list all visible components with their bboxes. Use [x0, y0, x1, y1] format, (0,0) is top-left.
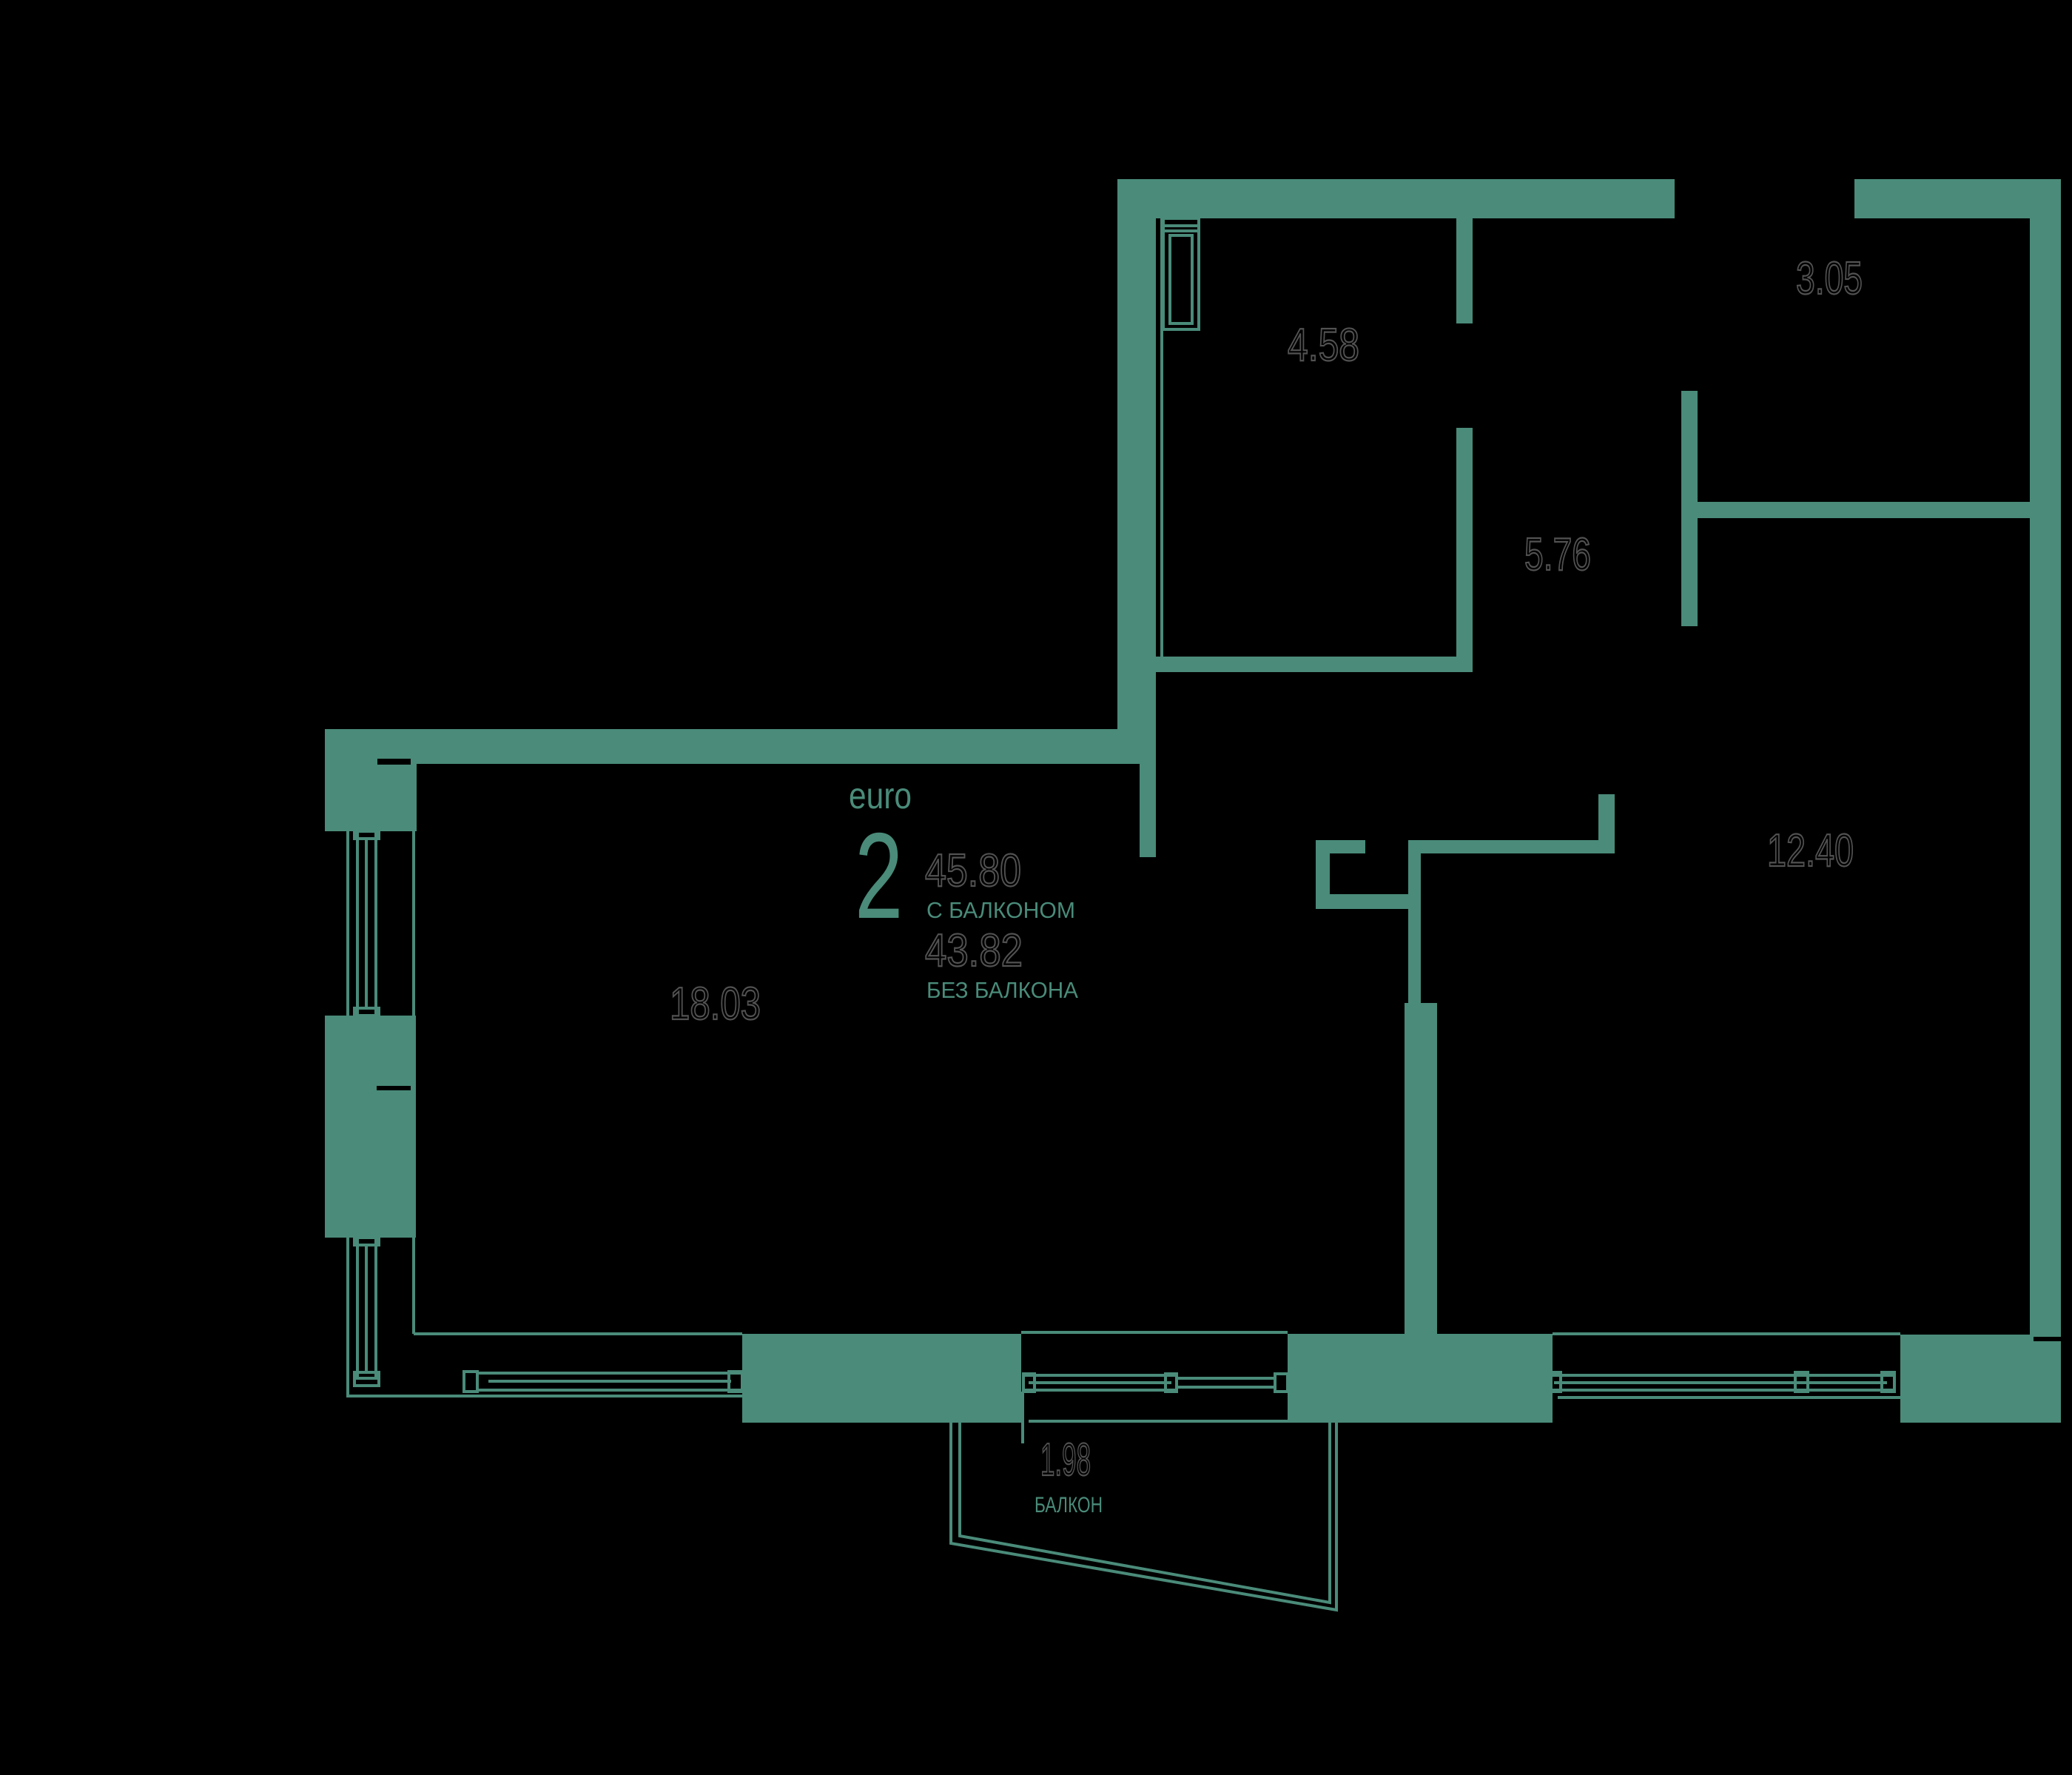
wall-niche-bottom	[1316, 894, 1408, 909]
rooms-count: 2	[855, 808, 904, 944]
wall-wardrobe-bedroom	[1698, 502, 2030, 518]
wall-hallway-wardrobe	[1681, 391, 1698, 626]
wall-left-upper-section	[1117, 218, 1156, 764]
wall-pier-balcony-left	[742, 1334, 1021, 1423]
wall-living-entrance-jamb	[1140, 764, 1156, 857]
balcony-door-cap-3	[1275, 1374, 1288, 1392]
room-label-balcony: БАЛКОН	[1035, 1493, 1103, 1517]
window-living-bottom-cap-left	[464, 1372, 477, 1392]
with-balcony-label: С БАЛКОНОМ	[926, 897, 1075, 923]
walls	[325, 179, 2061, 1423]
room-area-bedroom: 12.40	[1767, 825, 1854, 876]
wall-bathroom-bottom	[1152, 657, 1473, 672]
without-balcony-label: БЕЗ БАЛКОНА	[926, 977, 1078, 1003]
room-area-wardrobe: 3.05	[1796, 253, 1863, 304]
wall-corner-living-top-left	[325, 729, 417, 831]
wall-corner-bottom-right	[1900, 1335, 2061, 1423]
wall-bathroom-right-upper	[1456, 218, 1473, 323]
room-area-living: 18.03	[670, 979, 761, 1030]
wall-bedroom-door-jamb	[1598, 794, 1615, 853]
wall-left-pier	[325, 1016, 416, 1238]
notch-top-left	[377, 759, 411, 765]
wall-right-outer	[2030, 179, 2061, 1423]
bathroom-duct-inner	[1170, 235, 1192, 323]
room-area-balcony: 1.98	[1040, 1435, 1091, 1486]
wall-pier-balcony-right	[1288, 1334, 1553, 1423]
wall-top-left-segment	[1117, 179, 1675, 218]
area-with-balcony: 45.80	[925, 845, 1021, 896]
wall-living-bedroom-wide	[1405, 1003, 1437, 1335]
room-area-hallway: 5.76	[1524, 529, 1591, 580]
notch-left-pier	[377, 1086, 411, 1090]
wall-bathroom-right-lower	[1456, 428, 1473, 672]
wall-corridor-bottom	[1421, 840, 1615, 853]
balcony-outline-outer	[951, 1423, 1336, 1610]
wall-living-top	[325, 729, 1156, 764]
area-without-balcony: 43.82	[925, 925, 1023, 976]
room-area-bathroom: 4.58	[1288, 320, 1359, 371]
floor-plan-canvas: euro 2 45.80 С БАЛКОНОМ 43.82 БЕЗ БАЛКОН…	[0, 0, 2072, 1775]
balcony-outline	[951, 1423, 1336, 1610]
notch-bottom-right	[2034, 1337, 2062, 1341]
wall-living-bedroom-thin	[1408, 840, 1421, 1010]
